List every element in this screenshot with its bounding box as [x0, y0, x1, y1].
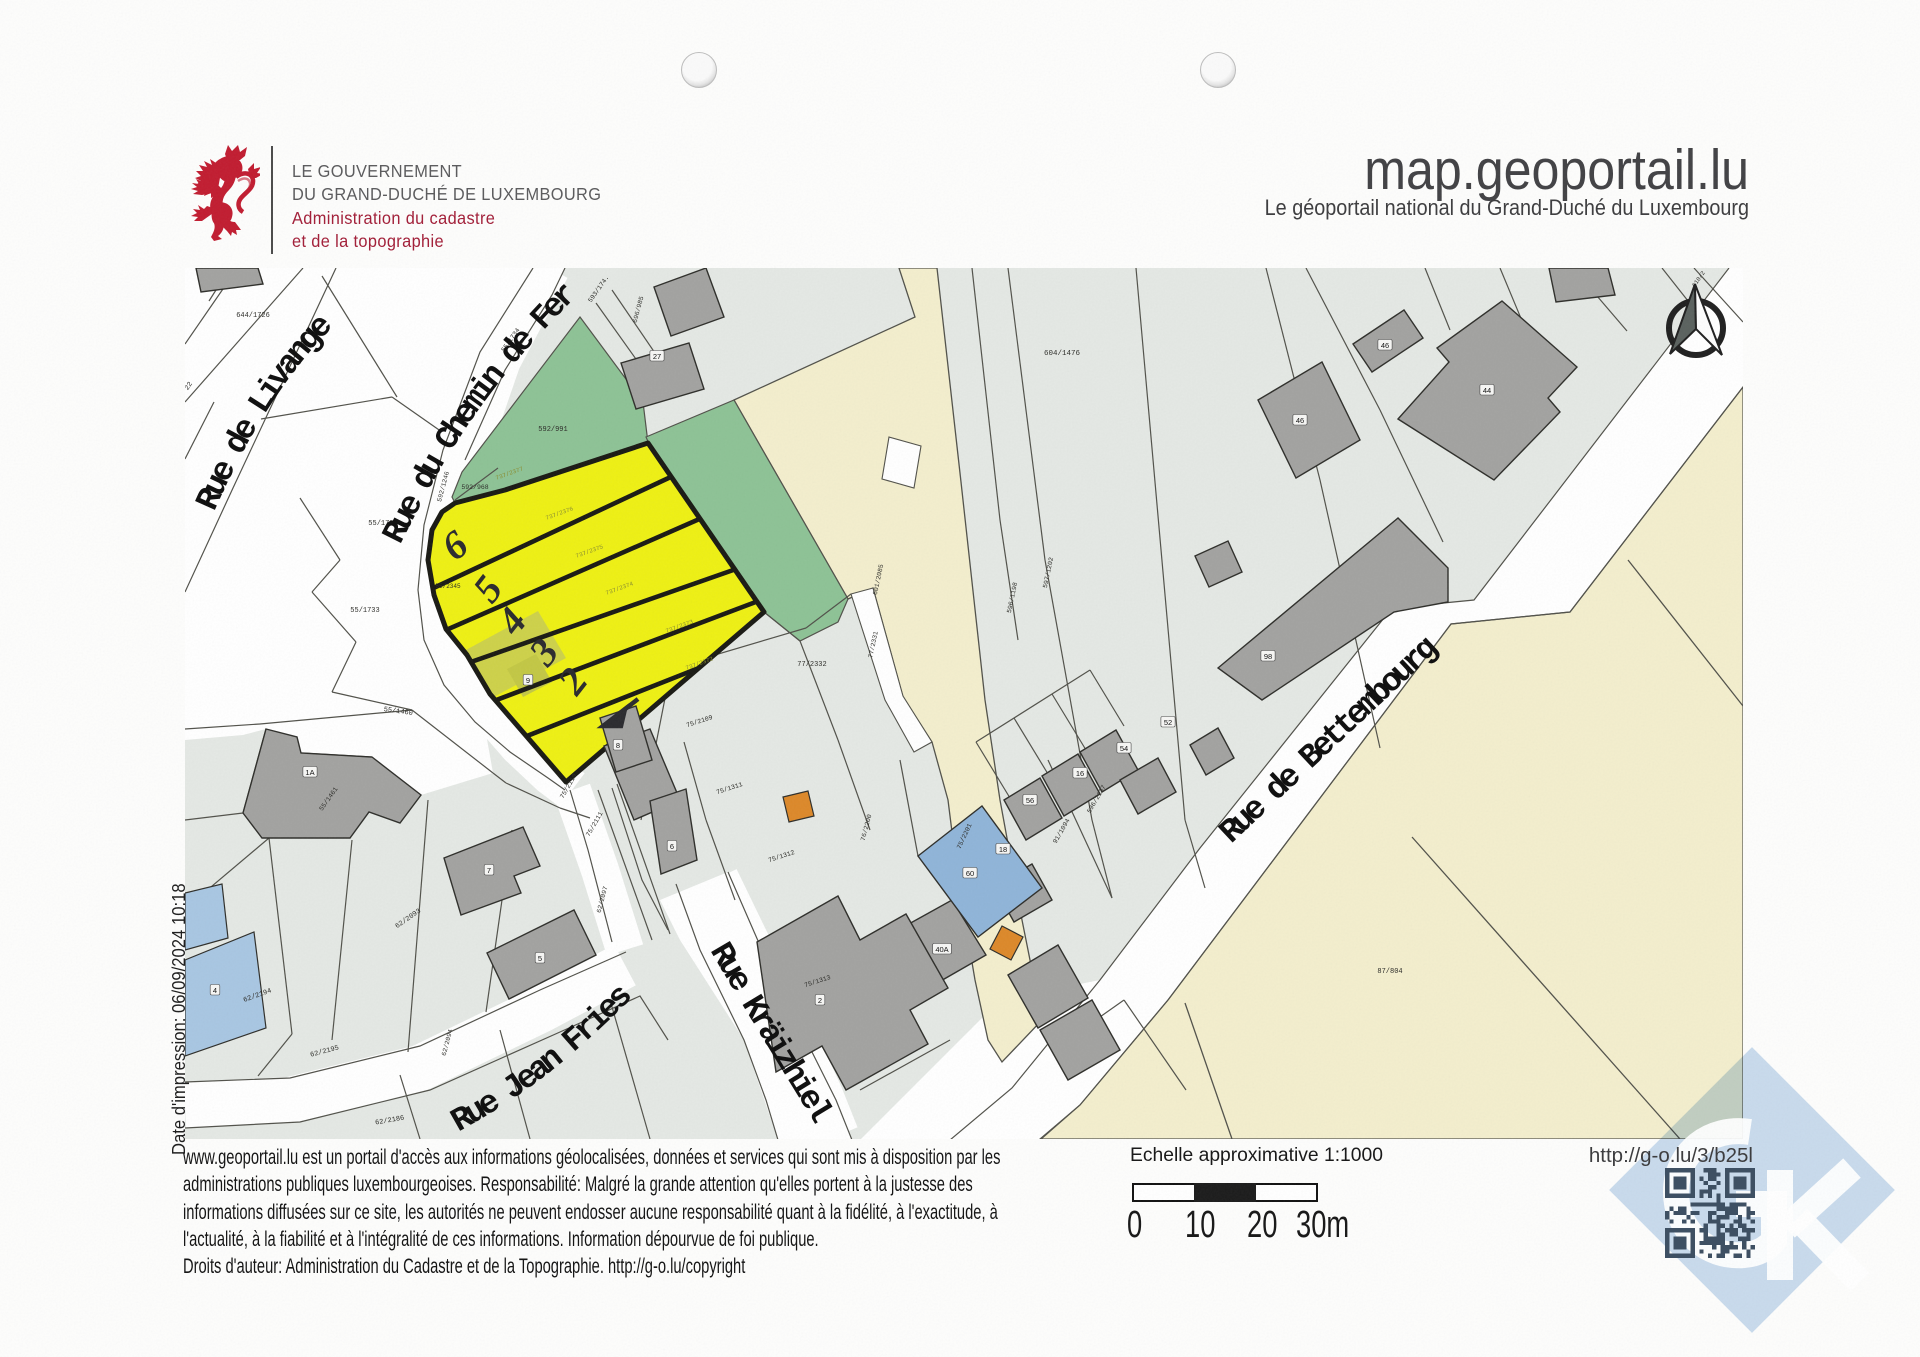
- svg-text:44: 44: [1483, 386, 1491, 395]
- svg-text:98: 98: [1264, 652, 1272, 661]
- svg-text:5: 5: [538, 954, 542, 963]
- svg-text:77/2332: 77/2332: [797, 661, 826, 669]
- svg-text:60: 60: [966, 869, 974, 878]
- svg-text:55/2345: 55/2345: [435, 583, 461, 590]
- svg-text:87/804: 87/804: [1377, 968, 1402, 976]
- svg-text:55/1733: 55/1733: [350, 607, 379, 615]
- svg-text:7: 7: [487, 866, 491, 875]
- svg-text:592/991: 592/991: [538, 426, 567, 434]
- svg-text:8: 8: [616, 741, 620, 750]
- svg-text:54: 54: [1120, 744, 1128, 753]
- svg-text:40A: 40A: [935, 945, 948, 954]
- svg-text:46: 46: [1296, 416, 1304, 425]
- svg-text:27: 27: [653, 352, 661, 361]
- svg-text:4: 4: [213, 986, 217, 995]
- svg-text:56: 56: [1026, 796, 1034, 805]
- svg-text:6: 6: [670, 842, 674, 851]
- svg-text:1A: 1A: [305, 768, 314, 777]
- svg-text:16: 16: [1076, 769, 1084, 778]
- svg-text:52: 52: [1164, 718, 1172, 727]
- svg-text:2: 2: [818, 996, 822, 1005]
- svg-text:46: 46: [1381, 341, 1389, 350]
- svg-text:592/968: 592/968: [461, 484, 488, 491]
- svg-text:9: 9: [526, 676, 530, 685]
- svg-text:644/1726: 644/1726: [236, 312, 270, 320]
- svg-text:18: 18: [999, 845, 1007, 854]
- svg-text:604/1476: 604/1476: [1044, 350, 1081, 358]
